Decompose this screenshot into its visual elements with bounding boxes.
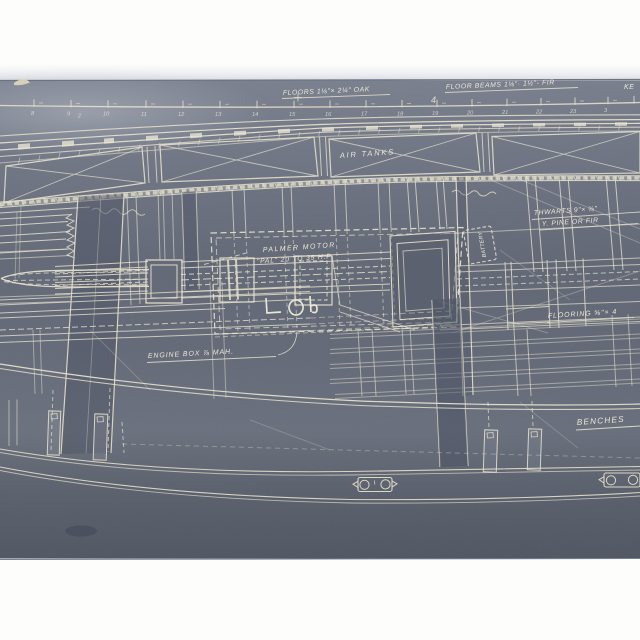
svg-text:23: 23: [569, 109, 577, 115]
svg-text:14: 14: [252, 112, 258, 118]
svg-text:11: 11: [141, 112, 147, 118]
svg-text:KE: KE: [624, 84, 635, 91]
svg-text:10: 10: [103, 112, 110, 118]
svg-text:9: 9: [67, 111, 70, 117]
svg-text:4: 4: [431, 95, 436, 105]
svg-text:15: 15: [289, 112, 296, 118]
svg-text:13: 13: [215, 112, 222, 118]
svg-text:12: 12: [178, 112, 185, 118]
svg-text:17: 17: [361, 112, 368, 118]
svg-text:2: 2: [77, 113, 81, 119]
svg-text:22: 22: [535, 110, 543, 116]
svg-text:16: 16: [325, 112, 332, 118]
